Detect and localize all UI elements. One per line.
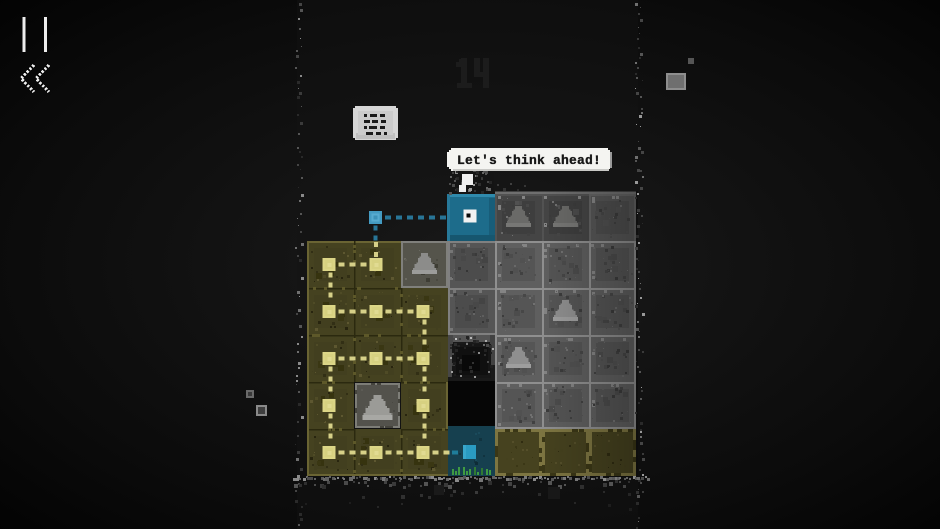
- svg-text:Let's think ahead!: Let's think ahead!: [457, 153, 601, 168]
